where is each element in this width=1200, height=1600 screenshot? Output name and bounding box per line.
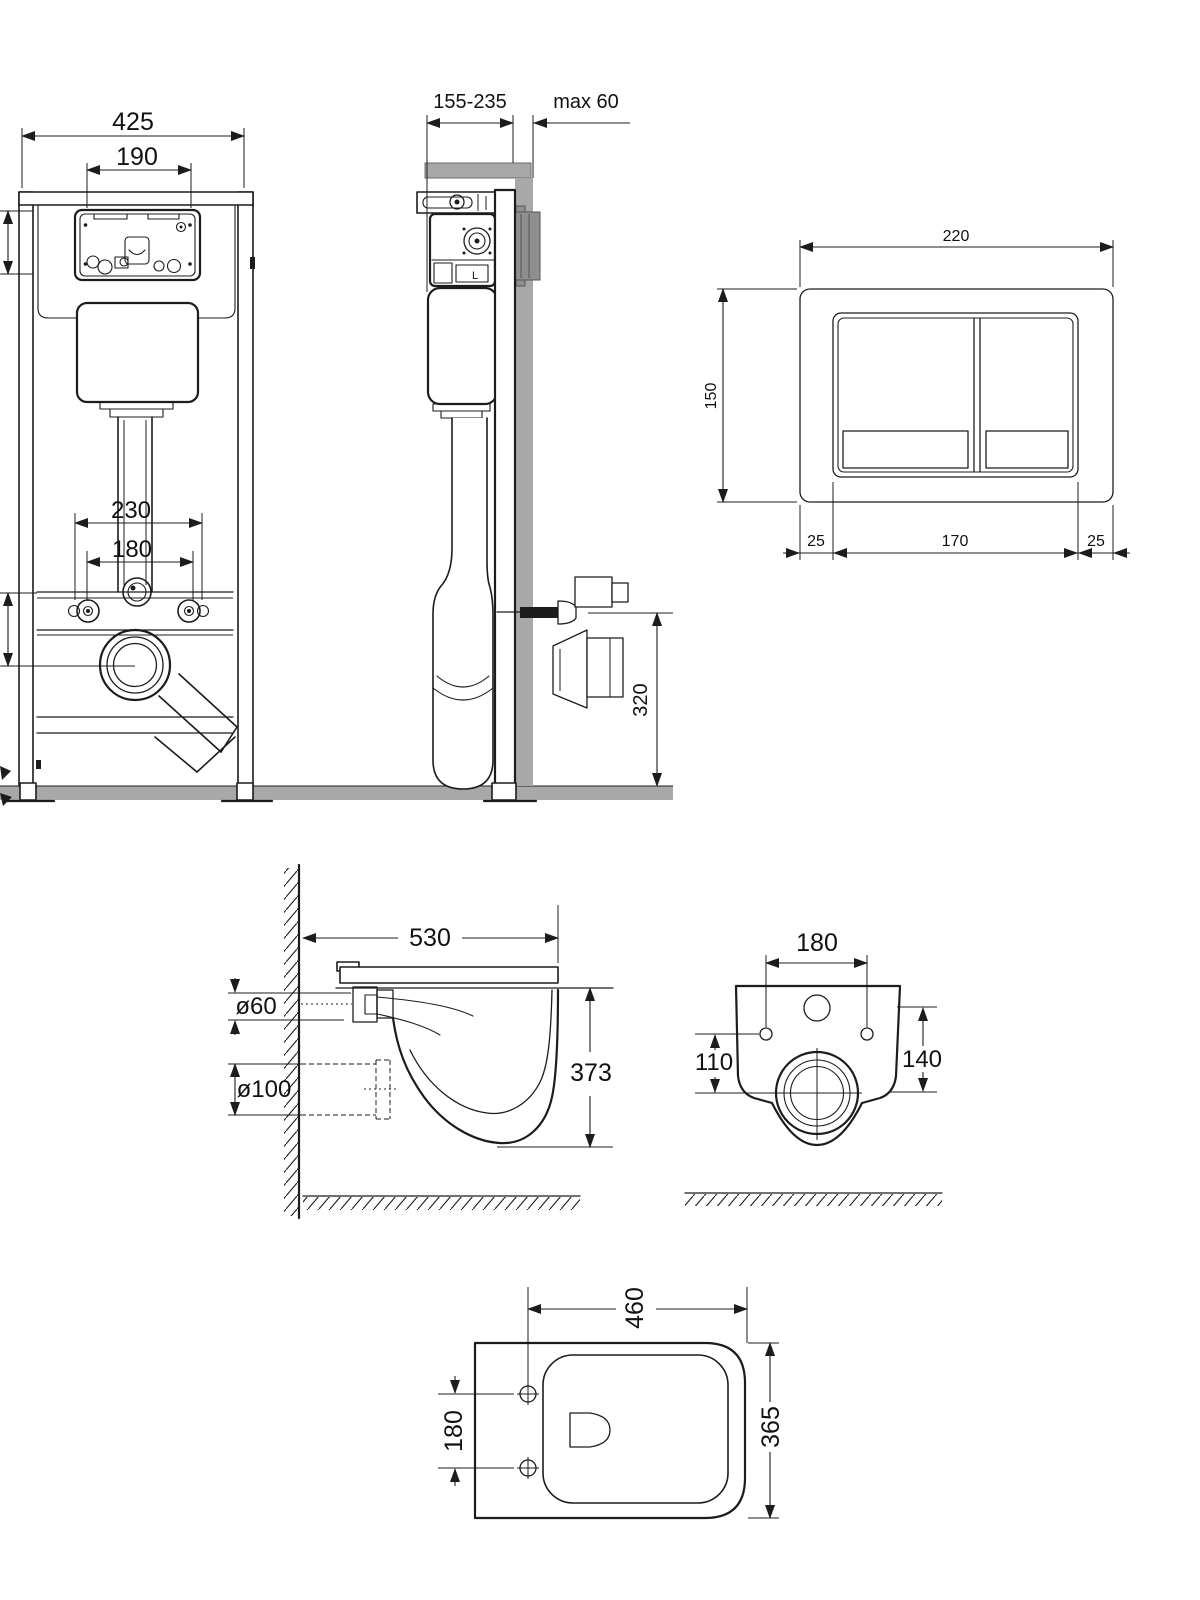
dim-plan-hole-span: 180 <box>440 1410 468 1452</box>
bowl-plan-view: 460 365 180 <box>438 1287 785 1518</box>
dim-bowl-height: 373 <box>570 1059 612 1087</box>
dim-side-depth-range: 155-235 <box>433 91 506 113</box>
flush-plate-view: 220 150 25 170 25 <box>703 228 1130 560</box>
access-box <box>75 210 200 280</box>
dim-rear-inlet-offset: 140 <box>902 1046 942 1073</box>
fixing-bolts <box>69 600 209 622</box>
bowl-rear-body <box>736 986 900 1145</box>
bowl-rear-view: 180 110 140 <box>685 929 942 1206</box>
flush-plate-body <box>800 289 1113 502</box>
top-bracket <box>417 192 497 213</box>
bowl-plan-dimensions: 460 365 180 <box>438 1287 785 1518</box>
floor <box>0 786 673 800</box>
shelf <box>425 163 531 178</box>
wall-hatch <box>284 868 299 1216</box>
dim-plate-margin-left: 25 <box>807 533 825 550</box>
dim-frame-access-width: 190 <box>116 143 158 171</box>
dim-plate-height: 150 <box>703 383 720 410</box>
dim-plate-buttons-width: 170 <box>942 533 969 550</box>
plan-fixing-holes <box>517 1383 539 1479</box>
plan-drain-hole <box>570 1413 610 1447</box>
technical-drawing: 425 190 230 180 <box>0 0 1200 1600</box>
seat-lid <box>340 967 558 983</box>
bowl-side-view: 530 ø60 ø100 373 <box>228 865 613 1218</box>
bowl-side-body <box>301 962 613 1143</box>
floor-hatch <box>303 1197 580 1210</box>
cistern-side <box>428 288 497 789</box>
dim-bowl-outlet-dia: ø100 <box>237 1076 292 1103</box>
rear-fixing-hole-left <box>760 1028 772 1040</box>
label-valve-mark: L <box>472 270 478 282</box>
bowl-rear-dimensions: 180 110 140 <box>695 929 942 1093</box>
dim-bowl-inlet-dia: ø60 <box>235 993 276 1020</box>
rear-fixing-hole-right <box>861 1028 873 1040</box>
flush-unit-side: L <box>430 214 495 286</box>
dim-bowl-length: 530 <box>409 924 451 952</box>
rear-inlet-hole <box>804 995 830 1021</box>
dim-frame-bolt-span: 230 <box>111 497 151 524</box>
dim-plate-margin-right: 25 <box>1087 533 1105 550</box>
frame-side-view: L <box>417 91 673 801</box>
floor-hatch-rear <box>685 1194 942 1206</box>
drawing-canvas: 425 190 230 180 <box>0 0 1200 1600</box>
dim-frame-width: 425 <box>112 108 154 136</box>
seat-opening <box>543 1355 728 1503</box>
dim-frame-bolt-inner-span: 180 <box>112 536 152 563</box>
dim-plan-width: 365 <box>757 1406 785 1448</box>
drain-outlet-front <box>100 630 237 752</box>
dim-plan-length: 460 <box>621 1287 649 1329</box>
dim-rear-outlet-offset: 110 <box>695 1049 733 1076</box>
dim-side-wall-max: max 60 <box>553 91 619 113</box>
wall-bracket <box>515 206 540 286</box>
dim-plate-width: 220 <box>943 228 970 245</box>
frame-front-view: 425 190 230 180 <box>0 108 272 806</box>
dim-side-outlet-height: 320 <box>630 683 652 716</box>
dim-rear-hole-span: 180 <box>796 929 838 957</box>
frame-rail <box>495 190 515 786</box>
